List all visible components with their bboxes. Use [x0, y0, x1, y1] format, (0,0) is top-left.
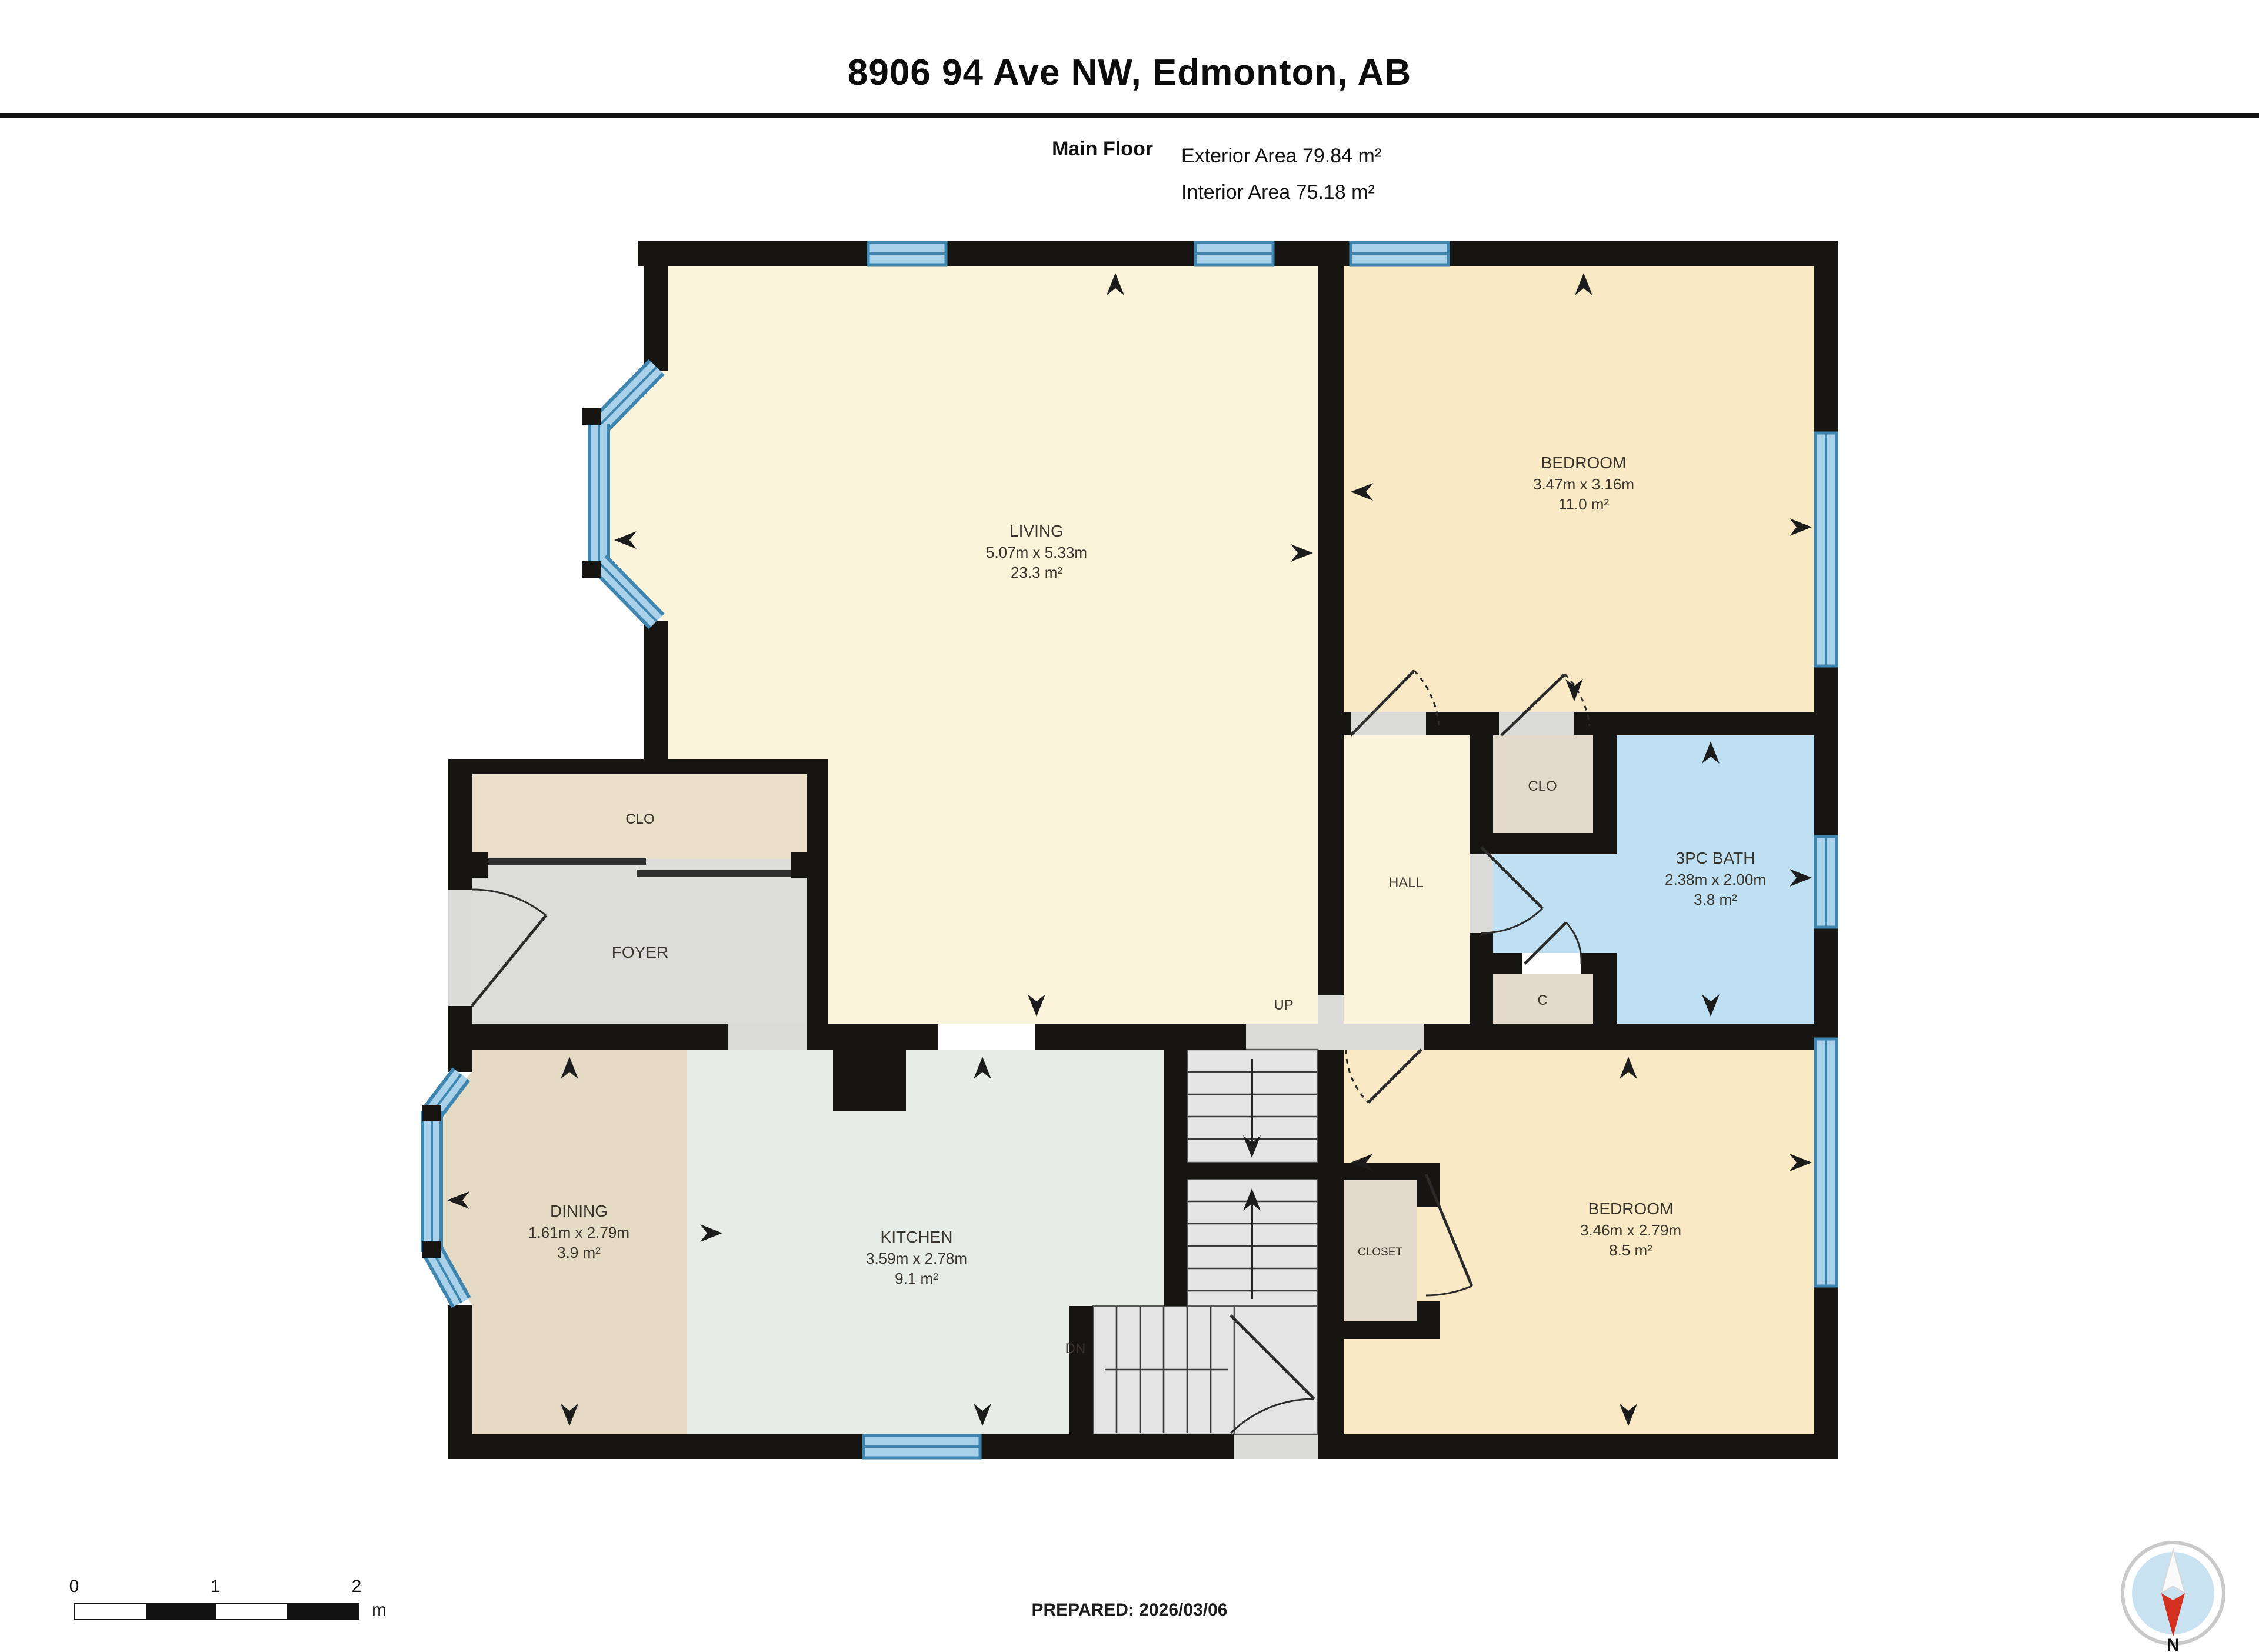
dining-dims: 1.61m x 2.79m [528, 1224, 629, 1241]
bath-door-opening [1470, 845, 1493, 933]
living-area: 23.3 m² [1011, 564, 1062, 581]
bedroom2-dims: 3.46m x 2.79m [1580, 1221, 1681, 1239]
floorplan-page: 8906 94 Ave NW, Edmonton, AB Main Floor … [0, 0, 2259, 1652]
foyer-label: FOYER [612, 943, 668, 961]
clo-bedroom-label: CLO [1528, 778, 1557, 794]
kitchen-dims: 3.59m x 2.78m [866, 1250, 967, 1267]
c-closet-label: C [1537, 992, 1547, 1008]
divider-line [0, 113, 2259, 118]
prepared-date: PREPARED: 2026/03/06 [0, 1600, 2259, 1620]
closet-label: CLOSET [1358, 1246, 1402, 1258]
back-door-opening [1234, 1434, 1318, 1459]
area-summary: Exterior Area 79.84 m² Interior Area 75.… [1181, 138, 1381, 211]
bedroom2-area: 8.5 m² [1609, 1241, 1652, 1259]
north-label: N [2117, 1636, 2230, 1652]
bedroom1-area: 11.0 m² [1558, 495, 1610, 513]
exterior-area: Exterior Area 79.84 m² [1181, 138, 1381, 174]
bath-dims: 2.38m x 2.00m [1665, 871, 1766, 888]
foyer-floor [472, 859, 807, 1024]
bath-area: 3.8 m² [1694, 891, 1737, 908]
dining-label: DINING [550, 1202, 608, 1220]
scale-tick-0: 0 [69, 1577, 79, 1597]
stairs-up-label: UP [1274, 997, 1293, 1013]
hall-landing-gap [1318, 995, 1344, 1024]
dining-area: 3.9 m² [557, 1244, 601, 1261]
kitchen-area: 9.1 m² [895, 1270, 938, 1287]
bath-label: 3PC BATH [1676, 849, 1755, 867]
bedroom2-door-opening [1346, 1024, 1424, 1050]
scale-tick-1: 1 [211, 1577, 221, 1597]
entry-door-opening [448, 890, 472, 1006]
interior-area: Interior Area 75.18 m² [1181, 174, 1381, 211]
back-door-landing [1234, 1306, 1318, 1434]
floor-label: Main Floor [824, 138, 1153, 161]
clo-bedroom-door-opening [1499, 712, 1574, 735]
bath-arm-floor [1493, 854, 1617, 953]
kitchen-label: KITCHEN [881, 1228, 953, 1246]
stairs-down-label: DN [1065, 1341, 1086, 1357]
living-dims: 5.07m x 5.33m [986, 544, 1087, 561]
hall-label: HALL [1388, 875, 1424, 891]
foyer-kitchen-opening [728, 1024, 807, 1050]
room-floors [440, 266, 1814, 1459]
bedroom1-label: BEDROOM [1541, 454, 1627, 472]
dining-floor [440, 1050, 687, 1434]
page-title: 8906 94 Ave NW, Edmonton, AB [0, 52, 2259, 94]
stair-landing [1246, 1024, 1346, 1050]
floor-plan: LIVING 5.07m x 5.33m 23.3 m² BEDROOM 3.4… [417, 233, 1885, 1483]
bedroom1-dims: 3.47m x 3.16m [1533, 475, 1634, 493]
scale-tick-2: 2 [352, 1577, 362, 1597]
bedroom2-label: BEDROOM [1588, 1200, 1674, 1218]
clo-foyer-label: CLO [625, 811, 654, 827]
living-label: LIVING [1009, 522, 1064, 540]
